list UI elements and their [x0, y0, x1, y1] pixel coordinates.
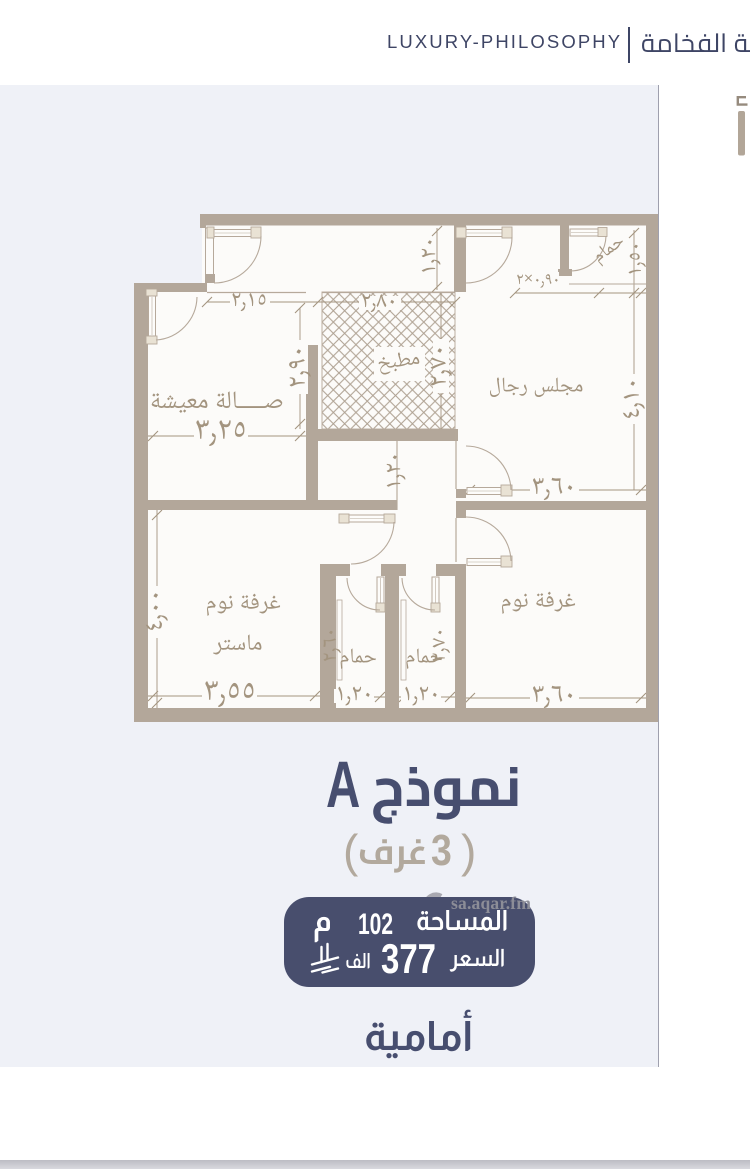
svg-text:): )	[461, 825, 476, 877]
svg-text:sa.aqar.fm: sa.aqar.fm	[451, 893, 531, 913]
svg-text:(: (	[343, 825, 359, 877]
svg-text:3: 3	[431, 825, 452, 875]
svg-text:A: A	[326, 748, 360, 821]
svg-text:377: 377	[381, 935, 436, 982]
